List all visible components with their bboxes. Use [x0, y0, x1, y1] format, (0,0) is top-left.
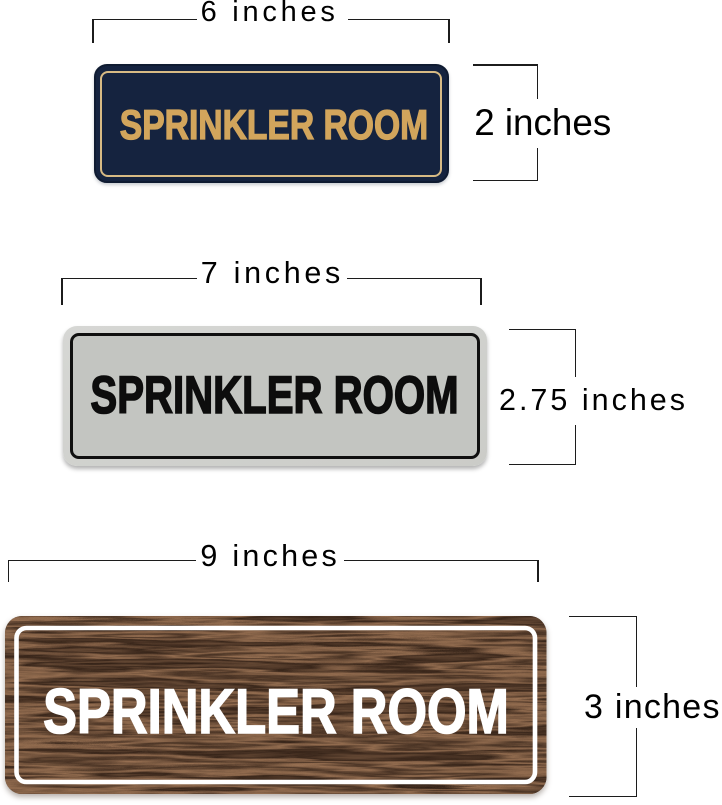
svg-text:SPRINKLER ROOM: SPRINKLER ROOM — [43, 677, 509, 747]
